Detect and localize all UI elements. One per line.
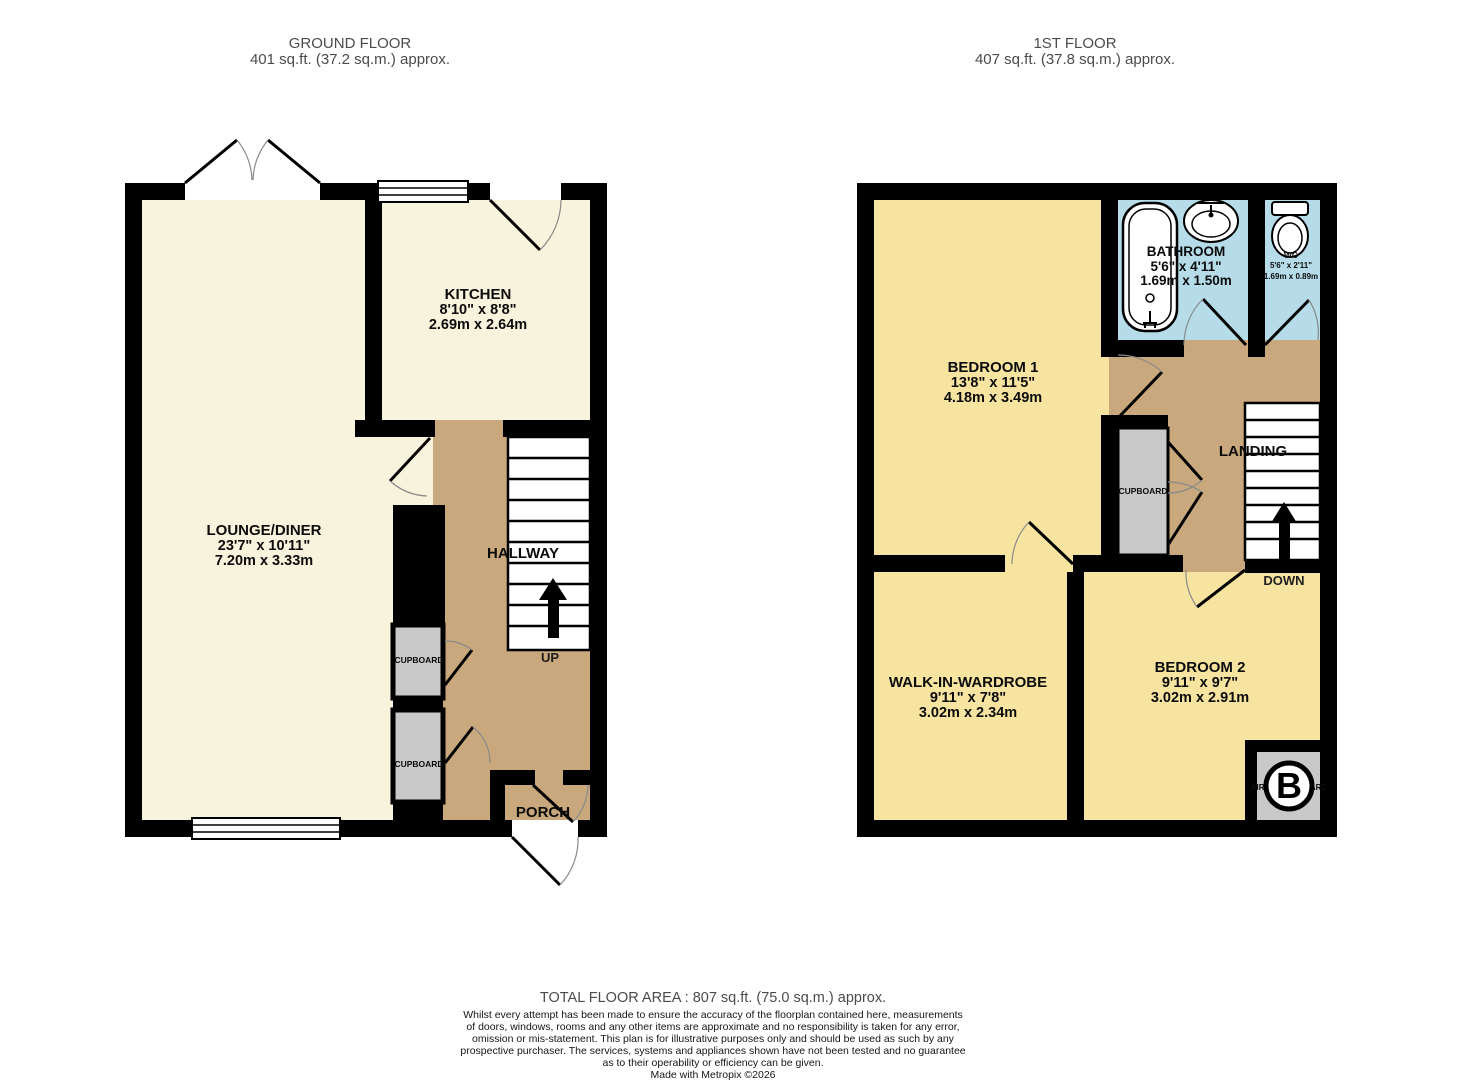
ground-floor-plan <box>125 140 607 885</box>
bedroom1-label: BEDROOM 1 13'8" x 11'5" 4.18m x 3.49m <box>944 360 1042 407</box>
cupboard-bottom-wall <box>393 802 443 820</box>
front-door-leaf <box>512 837 560 885</box>
first-cupboard-label: CUPBOARD <box>1118 487 1167 496</box>
total-floor-area: TOTAL FLOOR AREA : 807 sq.ft. (75.0 sq.m… <box>540 990 886 1006</box>
bedroom1-bottom-wall <box>857 555 1005 572</box>
bathroom-label: BATHROOM 5'6" x 4'11" 1.69m x 1.50m <box>1140 245 1232 289</box>
porch-label: PORCH <box>516 805 570 821</box>
first-floor-title: 1ST FLOOR 407 sq.ft. (37.8 sq.m.) approx… <box>975 36 1175 68</box>
wardrobe-label: WALK-IN-WARDROBE 9'11" x 7'8" 3.02m x 2.… <box>889 675 1047 722</box>
front-door-arc <box>560 837 578 885</box>
bathroom-left-wall <box>1101 183 1118 357</box>
lounge-window <box>192 818 340 839</box>
stairs-top-wall <box>503 420 607 437</box>
ground-floor-title-area: 401 sq.ft. (37.2 sq.m.) approx. <box>250 52 450 68</box>
airing-cupboard: AIRING CUPBOARD B <box>1245 740 1327 823</box>
down-label: DOWN <box>1263 574 1304 588</box>
bathroom-bottom-wall <box>1101 340 1184 357</box>
boiler-letter: B <box>1276 765 1302 806</box>
up-label: UP <box>541 651 559 665</box>
wardrobe-bedroom2-wall <box>1067 572 1084 820</box>
kitchen-left-wall <box>365 183 382 437</box>
porch-top-wall-left <box>505 770 535 785</box>
stairs-up <box>508 437 590 650</box>
front-door-opening <box>512 820 578 837</box>
first-floor-title-name: 1ST FLOOR <box>975 36 1175 52</box>
ground-floor-title: GROUND FLOOR 401 sq.ft. (37.2 sq.m.) app… <box>250 36 450 68</box>
disclaimer-text: Whilst every attempt has been made to en… <box>460 1009 965 1069</box>
sink-icon <box>1184 200 1238 242</box>
kitchen-label: KITCHEN 8'10" x 8'8" 2.69m x 2.64m <box>429 287 527 334</box>
french-door-opening <box>185 183 320 200</box>
toilet-icon <box>1272 202 1308 257</box>
kitchen-bottom-wall <box>355 420 435 437</box>
bathroom-wc-wall <box>1248 183 1265 357</box>
cupboard-lower-area <box>393 710 443 802</box>
porch-left-wall <box>490 770 505 837</box>
hallway-label: HALLWAY <box>487 546 559 562</box>
lounge-label: LOUNGE/DINER 23'7" x 10'11" 7.20m x 3.33… <box>206 523 321 570</box>
first-floor-title-area: 407 sq.ft. (37.8 sq.m.) approx. <box>975 52 1175 68</box>
french-door-leaves <box>185 140 320 183</box>
landing-label: LANDING <box>1219 444 1287 460</box>
cupboard-lower-label: CUPBOARD <box>394 760 443 769</box>
bedroom2-label: BEDROOM 2 9'11" x 9'7" 3.02m x 2.91m <box>1151 660 1249 707</box>
kitchen-window <box>378 181 468 202</box>
kitchen-door-opening <box>490 183 561 200</box>
cupboard-upper-label: CUPBOARD <box>394 656 443 665</box>
ground-floor-title-name: GROUND FLOOR <box>250 36 450 52</box>
floorplan-page: AIRING CUPBOARD B <box>0 0 1463 1080</box>
porch-top-wall-right <box>563 770 590 785</box>
bedroom1-right-wall <box>1101 415 1118 568</box>
footer-disclaimer: Whilst every attempt has been made to en… <box>460 1009 965 1080</box>
credit-text: Made with Metropix ©2026 <box>460 1069 965 1080</box>
wc-label: WC 5'6" x 2'11" 1.69m x 0.89m <box>1264 250 1318 282</box>
chimney-block <box>393 505 445 625</box>
french-door-arcs <box>237 140 268 180</box>
kitchen-opening <box>435 420 503 437</box>
mid-wall <box>1073 555 1183 572</box>
stairs-down <box>1245 403 1320 560</box>
